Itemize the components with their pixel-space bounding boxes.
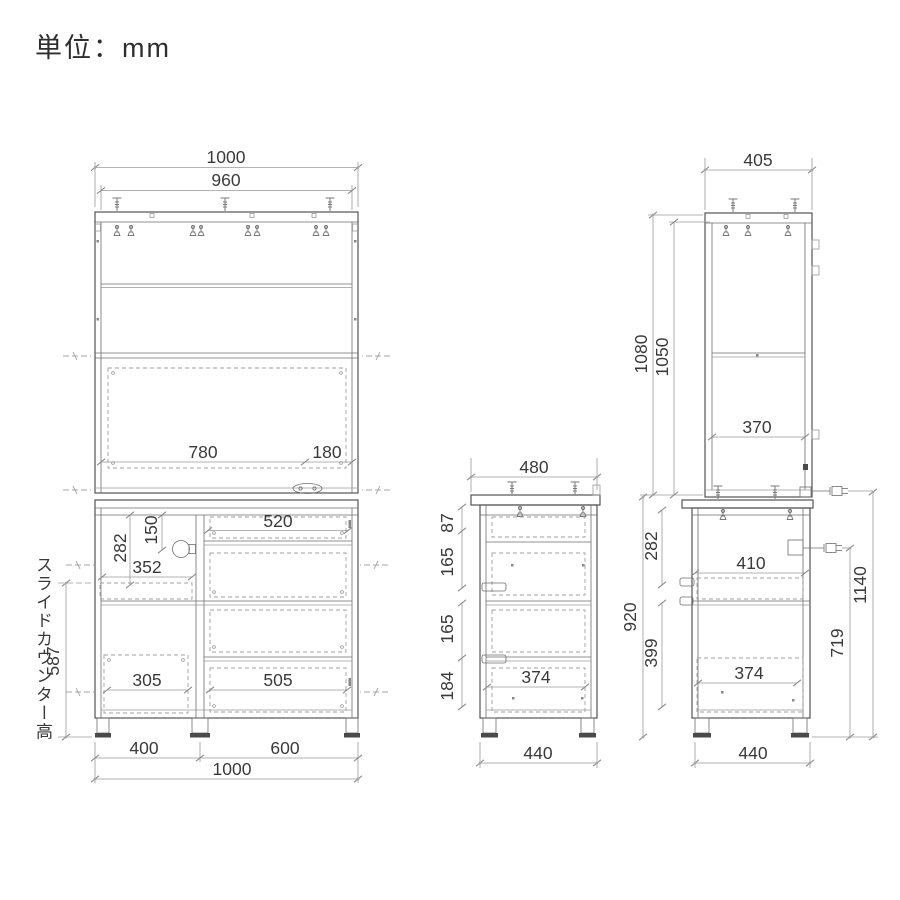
dim-tall-base-depth: 440 bbox=[738, 743, 767, 763]
tall-upper-cabinet: 370 bbox=[705, 199, 873, 497]
dim-side-h1: 87 bbox=[437, 513, 457, 532]
dim-tall-lower-height: 920 bbox=[620, 602, 640, 631]
dim-side-h2: 165 bbox=[437, 547, 457, 576]
front-top-dimensions: 1000 960 bbox=[91, 147, 362, 210]
tall-right-dimensions: 719 1140 bbox=[812, 489, 878, 740]
dim-tall-h2: 399 bbox=[641, 638, 661, 667]
dim-tall-slide-depth: 410 bbox=[736, 553, 765, 573]
dim-tall-shelf-depth: 370 bbox=[742, 417, 771, 437]
side-view-lower: 480 bbox=[437, 457, 601, 768]
dim-tall-h1: 282 bbox=[641, 531, 661, 560]
side-bottom-dimension: 440 bbox=[476, 742, 601, 768]
dim-tall-upper-height: 1080 bbox=[631, 334, 651, 373]
dim-tall-top-depth: 405 bbox=[743, 150, 772, 170]
side-body bbox=[480, 505, 597, 738]
dim-front-open-width: 305 bbox=[132, 670, 161, 690]
drawing-page: 単位：mm 1000 960 bbox=[0, 0, 900, 900]
top-fitting-icon bbox=[114, 225, 329, 235]
tall-lower-cabinet: 410 374 bbox=[680, 486, 850, 738]
dim-tall-upper-inner-height: 1050 bbox=[652, 337, 672, 376]
dim-tall-total-height: 1140 bbox=[850, 566, 870, 604]
top-screw-icon bbox=[113, 198, 335, 211]
hinge-icon bbox=[812, 266, 819, 275]
dim-front-left-height1: 282 bbox=[110, 533, 130, 562]
upper-plug-icon bbox=[800, 487, 873, 498]
unit-label: 単位：mm bbox=[35, 33, 171, 63]
dim-side-drawer-depth: 374 bbox=[521, 667, 550, 687]
tall-bottom-dimension: 440 bbox=[691, 742, 814, 768]
dim-side-top-depth: 480 bbox=[519, 457, 548, 477]
dim-front-drawer-width: 505 bbox=[263, 670, 292, 690]
hinge-icon bbox=[812, 430, 819, 439]
dim-front-slide-width: 352 bbox=[132, 557, 161, 577]
outlet-cord-icon bbox=[788, 540, 850, 555]
tall-top-dimension: 405 bbox=[701, 150, 816, 210]
dim-side-base-depth: 440 bbox=[523, 743, 552, 763]
side-view-full: 405 370 bbox=[620, 150, 878, 768]
dim-tall-drawer-depth: 374 bbox=[734, 663, 763, 683]
technical-drawing: 単位：mm 1000 960 bbox=[0, 0, 900, 900]
side-counter bbox=[471, 482, 600, 517]
front-bottom-dimensions: 400 600 1000 bbox=[91, 738, 362, 783]
dim-front-base-right: 600 bbox=[270, 738, 299, 758]
dim-front-flap-right: 180 bbox=[312, 442, 341, 462]
dim-front-flap-width: 780 bbox=[188, 442, 217, 462]
dim-front-inner-width: 960 bbox=[211, 170, 240, 190]
hinge-icon bbox=[812, 240, 819, 249]
dim-front-left-height2: 150 bbox=[141, 515, 161, 544]
tall-upper-height-dimensions: 1080 1050 bbox=[631, 212, 710, 498]
front-lower-cabinet: 282 150 352 305 520 bbox=[66, 500, 388, 738]
front-upper-cabinet: 780 180 bbox=[63, 198, 390, 494]
outlet-icon bbox=[293, 484, 322, 494]
dim-front-total-width: 1000 bbox=[207, 147, 246, 167]
tall-lower-height-dimensions: 282 920 399 bbox=[620, 494, 666, 740]
hook-icon bbox=[173, 541, 196, 558]
front-view: 1000 960 bbox=[43, 147, 390, 783]
slide-counter-height-label: スライドカウンター高 bbox=[30, 556, 55, 741]
dim-side-h3: 165 bbox=[437, 614, 457, 643]
side-height-dimensions: 87 165 165 184 bbox=[437, 504, 466, 710]
dim-front-top-drawer-width: 520 bbox=[263, 511, 292, 531]
dim-side-h4: 184 bbox=[437, 671, 457, 700]
handle-tab-icon bbox=[680, 597, 693, 605]
dim-front-base-total: 1000 bbox=[213, 759, 252, 779]
dim-tall-outlet-height: 719 bbox=[827, 628, 847, 657]
dim-front-base-left: 400 bbox=[129, 738, 158, 758]
